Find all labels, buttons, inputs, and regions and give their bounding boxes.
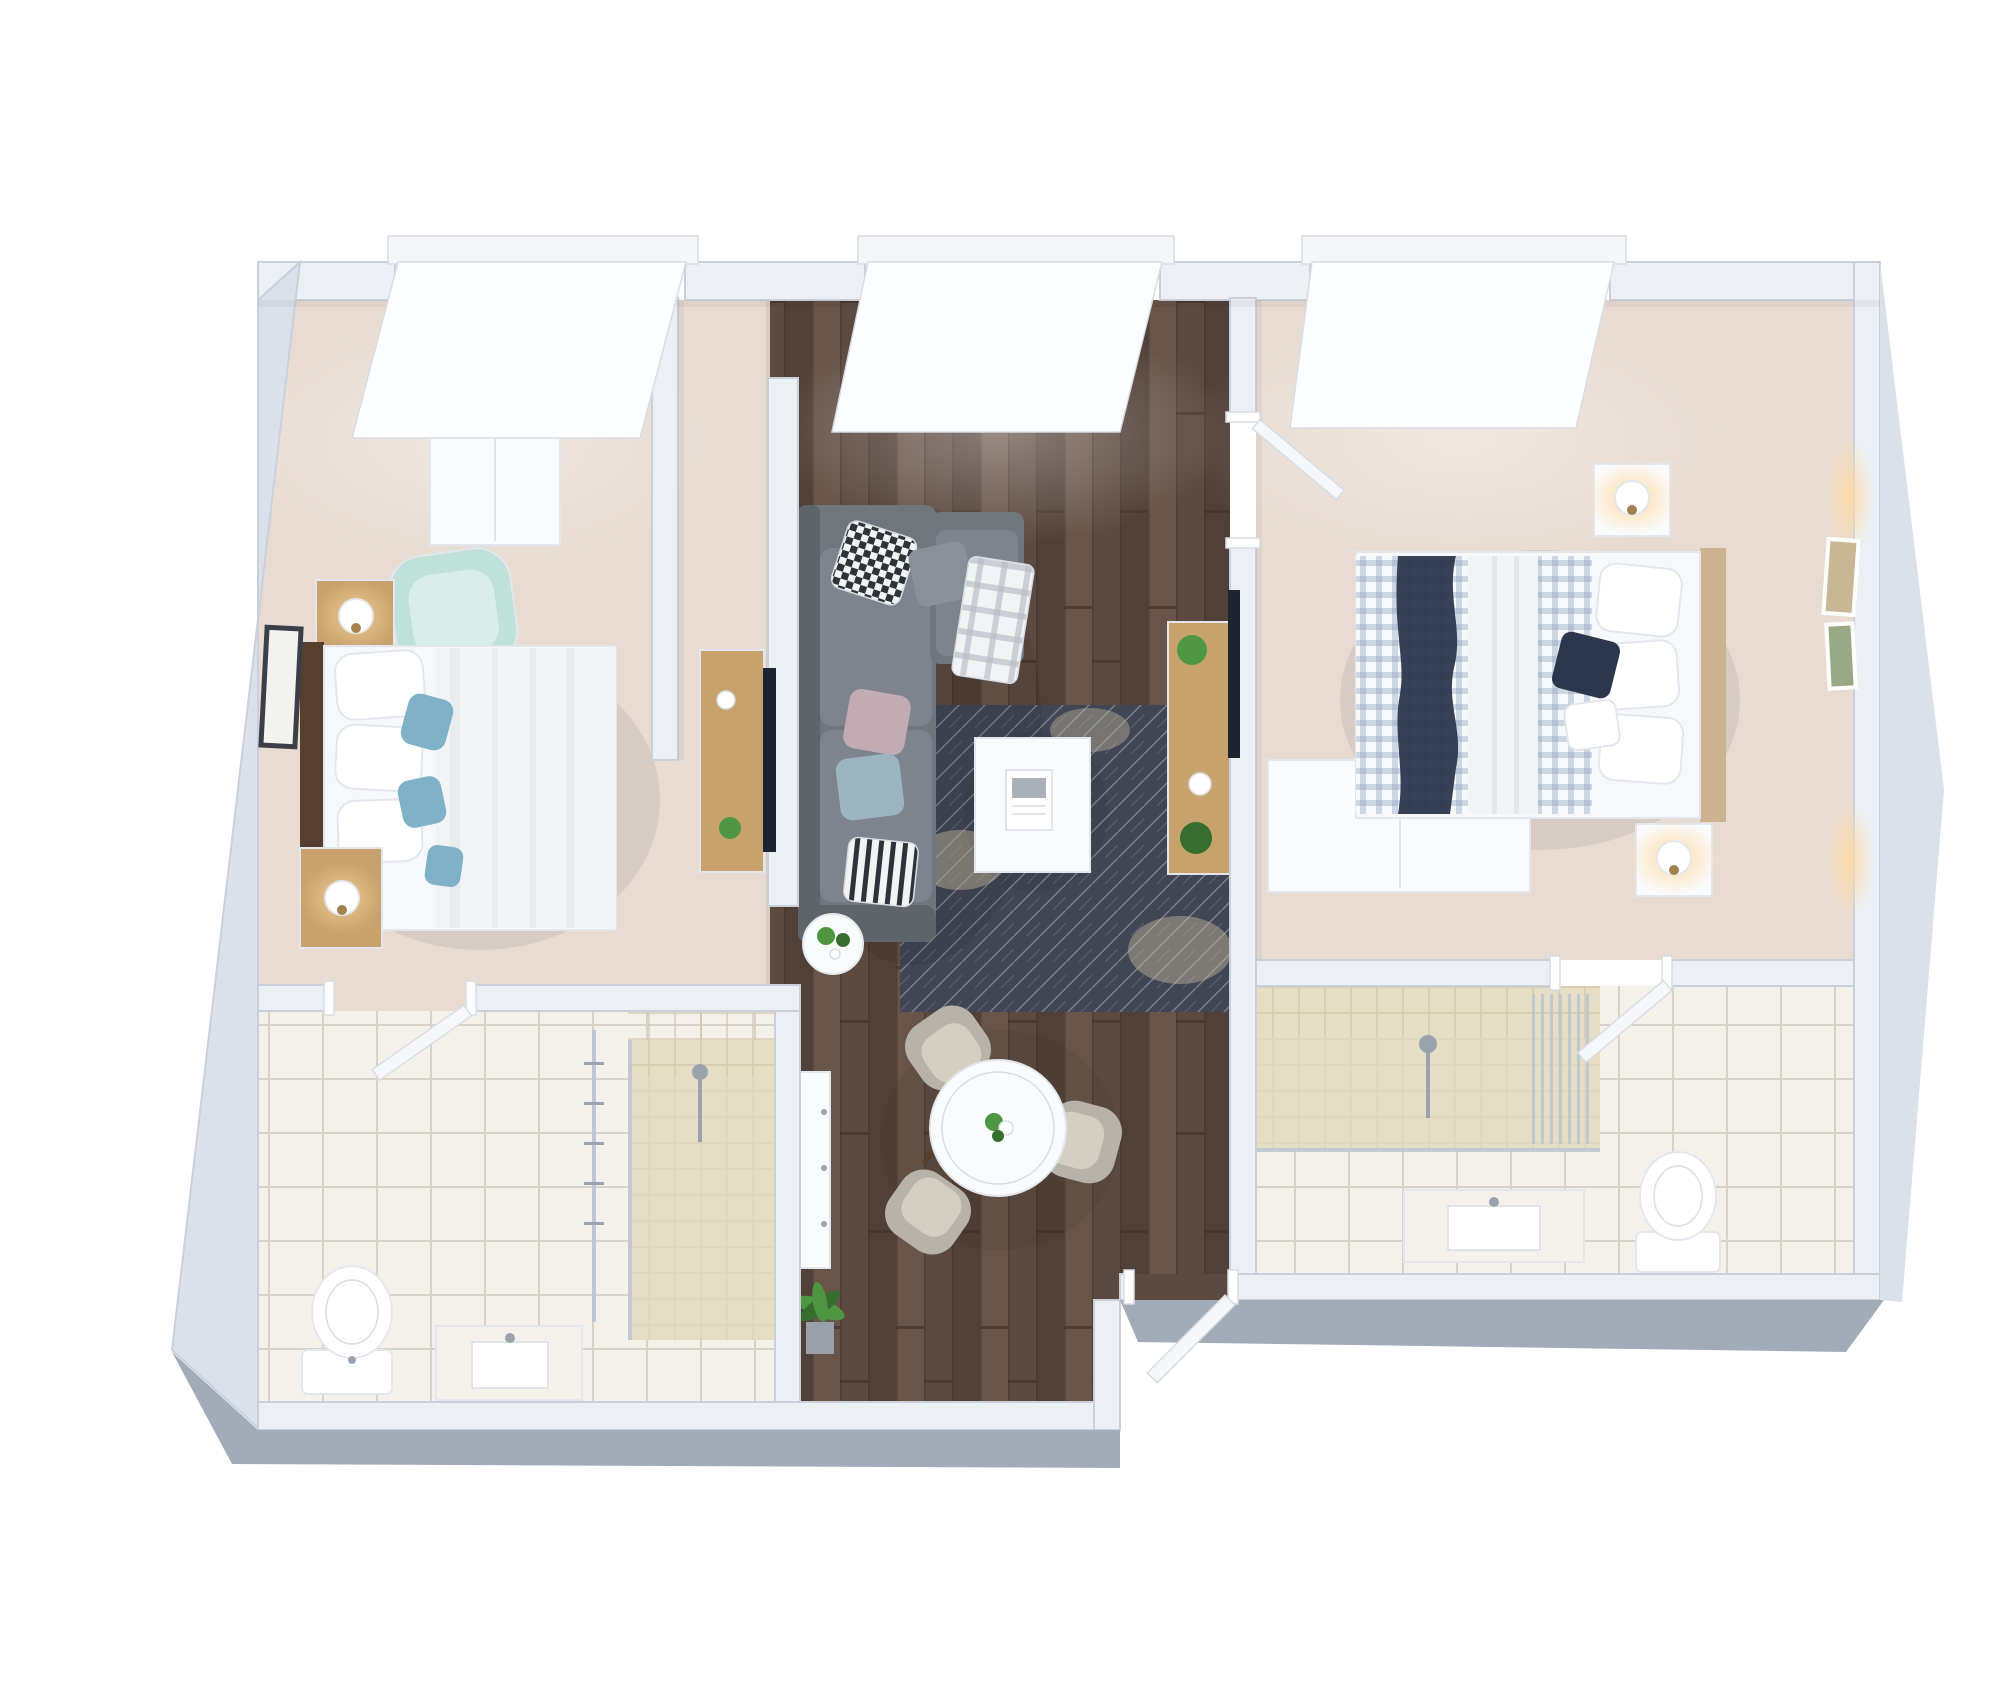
side-table-plant (836, 933, 850, 947)
shower-glass-slat (1586, 994, 1589, 1144)
duvet-fold (530, 648, 536, 928)
south-wall-left-wing (258, 1402, 1120, 1430)
bathroom1-east-wall (775, 1011, 800, 1402)
lamp-base (1627, 505, 1637, 515)
door-jamb (1226, 412, 1260, 422)
shower-pole (1426, 1052, 1430, 1118)
console-plant (1177, 635, 1207, 665)
apartment-3d-floorplan (0, 0, 2000, 1700)
side-table-vase (830, 949, 840, 959)
wall-art-bedroom2 (1823, 539, 1858, 615)
floorplan-render (0, 0, 2000, 1700)
entry-threshold (1132, 1274, 1230, 1300)
towel-rail-bar (584, 1142, 604, 1145)
blanket-fold (1492, 556, 1497, 814)
console-plant (719, 817, 741, 839)
shower-glass-slat (1559, 994, 1562, 1144)
pillow-blue (834, 752, 905, 821)
towel-rail-pole (592, 1030, 596, 1322)
tv-bedroom1 (763, 668, 776, 852)
bed1-duvet (436, 648, 616, 928)
toilet-bowl (1640, 1152, 1716, 1240)
console-decor (1189, 773, 1211, 795)
north-wall-segment (685, 262, 865, 300)
magazine-photo (1012, 778, 1046, 798)
shower-glass-slat (1550, 994, 1553, 1144)
faucet (1489, 1197, 1499, 1207)
shower-pole (698, 1080, 702, 1142)
shower-glass-slat (1577, 994, 1580, 1144)
window-glass-living (832, 262, 1162, 432)
lamp-base (351, 623, 361, 633)
wall-inner-shadow (678, 298, 684, 760)
south-right-outer-face (1120, 1300, 1884, 1352)
wall-art-bedroom2 (1826, 623, 1855, 688)
bathroom2-north-wall (1668, 960, 1854, 986)
entry-door-jamb (1124, 1270, 1134, 1304)
pillow-teal-small (423, 844, 464, 889)
pillow-pink (841, 687, 912, 757)
side-table-plant (817, 927, 835, 945)
door-jamb (1226, 538, 1260, 548)
sideboard-handle (821, 1109, 827, 1115)
lamp-base (337, 905, 347, 915)
step-wall (1094, 1300, 1120, 1430)
window-sill (388, 236, 698, 264)
shower-head (1419, 1035, 1437, 1053)
bathroom2-north-wall (1256, 960, 1556, 986)
blanket-fold (1514, 556, 1519, 814)
bathroom1-north-wall (258, 985, 330, 1011)
towel-rail-bar (584, 1102, 604, 1105)
door-jamb (324, 981, 334, 1015)
window-sill (1302, 236, 1626, 264)
door-jamb (1550, 956, 1560, 990)
sofa-backrest (798, 505, 820, 942)
lamp-base (1669, 865, 1679, 875)
bed2-white-blanket (1468, 556, 1538, 814)
north-wall-segment (1610, 262, 1880, 300)
table-flowers (992, 1130, 1004, 1142)
rug-worn-patch (1128, 916, 1232, 984)
sideboard-handle (821, 1165, 827, 1171)
sink-basin (1448, 1206, 1540, 1250)
pillow-lumbar (1563, 699, 1621, 752)
console-decor (717, 691, 735, 709)
sink-basin (472, 1342, 548, 1388)
tv-living (1228, 590, 1240, 758)
windows (352, 236, 1626, 438)
east-wall (1854, 262, 1880, 1300)
shower-head (692, 1064, 708, 1080)
towel-rail-bar (584, 1222, 604, 1225)
bathroom1-north-wall (470, 985, 800, 1011)
wall-art-bedroom1 (261, 627, 301, 747)
plant-pot (806, 1322, 834, 1354)
bathroom2-shower-wall-tiles (1256, 986, 1600, 1038)
shower-glass-screen (628, 1040, 632, 1340)
pillow-striped (843, 837, 919, 908)
duvet-fold (492, 648, 498, 928)
duvet-fold (566, 648, 574, 928)
east-outer-face (1880, 262, 1944, 1302)
north-wall-segment (1160, 262, 1310, 300)
wall-lamp-glow (1826, 802, 1874, 918)
wall-inner-shadow (1256, 300, 1262, 960)
bed2-navy-throw (1396, 556, 1458, 814)
shower-glass-slat (1532, 994, 1535, 1144)
towel-rail-bar (584, 1182, 604, 1185)
faucet (505, 1333, 515, 1343)
shower-glass-slat (1541, 994, 1544, 1144)
window-sill (858, 236, 1174, 264)
bedroom2-west-wall (1230, 298, 1256, 420)
towel-rail-bar (584, 1062, 604, 1065)
shower-glass-slat (1568, 994, 1571, 1144)
console-plant (1180, 822, 1212, 854)
side-table (803, 914, 863, 974)
window-glass-bedroom2 (1290, 262, 1614, 428)
shower-glass-screen (1256, 1148, 1600, 1152)
pillow-white (1595, 562, 1684, 638)
wall-lamp-glow (1826, 438, 1874, 554)
bed2-headboard (1700, 548, 1726, 822)
window-glass-bedroom1 (352, 262, 686, 438)
sideboard-handle (821, 1221, 827, 1227)
toilet-flush-button (348, 1356, 356, 1364)
south-wall-right-wing (1230, 1274, 1880, 1300)
